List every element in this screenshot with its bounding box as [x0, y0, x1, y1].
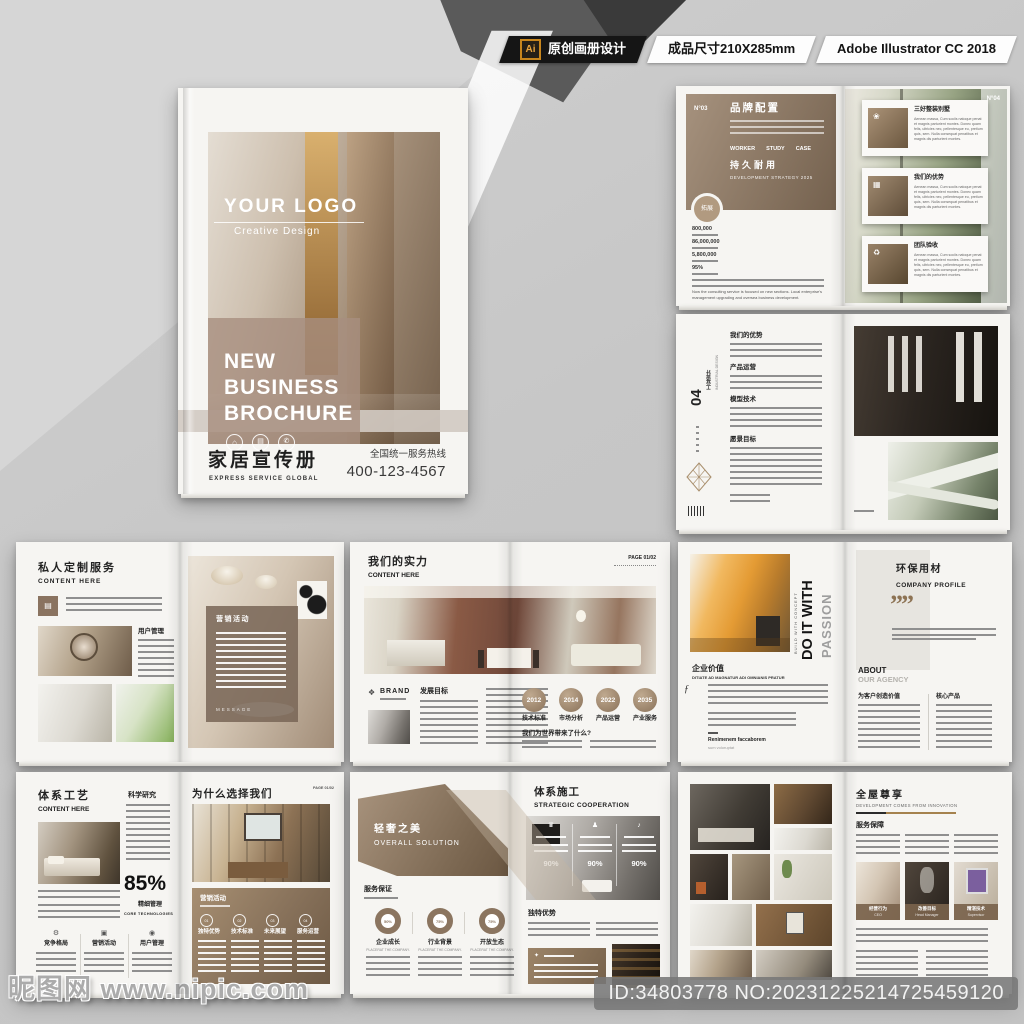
donut-sub-2: PLACERAT THE COMPANY. — [418, 949, 462, 953]
whole-photo-1: 经营行为 CEO — [856, 862, 900, 920]
recycle-icon: ♻ — [873, 248, 880, 257]
photo-accent — [786, 912, 804, 934]
overlay-pct-2: 90% — [576, 860, 614, 869]
text-lines — [578, 844, 612, 854]
strength-section: 发展目标 — [420, 688, 448, 696]
diamond-icon: ❖ — [368, 688, 375, 697]
dotted-rule — [614, 565, 656, 566]
donut-2: 75% — [427, 908, 453, 934]
cover-hotline-number: 400-123-4567 — [347, 463, 446, 480]
industrial-title-cn: 工业设计 — [707, 330, 713, 390]
caption-sub: Head Manager — [905, 913, 949, 917]
whole-collage — [690, 784, 832, 980]
luxury-right-subtitle: STRATEGIC COOPERATION — [534, 802, 629, 809]
donut-3: 75% — [479, 908, 505, 934]
header-design-segment: Ai 原创画册设计 — [499, 36, 647, 63]
text-lines — [856, 834, 900, 854]
caption-sub: Supervisor — [954, 913, 998, 917]
quote-icon: ”” — [890, 590, 912, 620]
craft-stat-sub: CORE TECHNOLOGIES — [124, 912, 173, 916]
photo-accent — [211, 566, 243, 585]
industrial-photo-arch — [888, 442, 998, 520]
whole-section: 服务保障 — [856, 822, 884, 830]
year-circle-4: 2035 — [633, 688, 657, 712]
strength-title: 我们的实力 — [368, 556, 428, 569]
brand-stat-2: 86,000,000 — [692, 239, 720, 245]
collage-photo — [690, 854, 728, 900]
strength-brand: BRAND — [380, 688, 410, 696]
photo-caption: 改善目标 Head Manager — [905, 904, 949, 920]
collage-photo — [732, 854, 770, 900]
custom-overlay: 营销活动 MESSAGE — [206, 606, 298, 722]
craft-panel-title: 营销活动 — [200, 895, 226, 902]
text-lines — [858, 704, 920, 752]
spread-brand: N°03 品牌配置 WORKER STUDY CASE 持久耐用 DEVELOP… — [676, 86, 1010, 306]
text-lines — [596, 922, 658, 940]
photo-accent — [228, 862, 288, 878]
collage-photo — [774, 784, 832, 824]
year-circle-2: 2014 — [559, 688, 583, 712]
spread-industrial: 工业设计 INDUSTRIAL DESIGN 04 我们的优势 产品运营 模型技… — [676, 314, 1010, 530]
text-lines — [624, 836, 654, 839]
brand-card-3: ♻ 团队验收 Aenean massa, Cum sociis natoque … — [862, 236, 988, 292]
text-lines — [590, 740, 656, 752]
text-lines — [297, 940, 325, 974]
text-lines — [418, 956, 462, 978]
brand-stat-3: 5,800,000 — [692, 252, 716, 258]
craft-page-no: PAGE 01/02 — [313, 786, 334, 790]
collage-photo — [690, 784, 770, 850]
cover-book: YOUR LOGO Creative Design NEW BUSINESS B… — [178, 88, 468, 494]
year-circle-1: 2012 — [522, 688, 546, 712]
grid-icon: ▤ — [38, 596, 58, 616]
craft-right-title: 为什么选择我们 — [192, 788, 273, 800]
industrial-section-3: 模型技术 — [730, 396, 756, 403]
card-body: Aenean massa, Cum sociis natoque penat e… — [914, 117, 984, 142]
text-lines — [730, 343, 822, 357]
text-lines — [730, 120, 824, 134]
passion-col1-title: 为客户创造价值 — [858, 694, 900, 701]
cover-title-line2: BUSINESS — [224, 376, 339, 400]
photo-accent — [576, 610, 586, 622]
text-lines — [926, 950, 988, 980]
text-lines — [692, 273, 718, 276]
photo-accent — [533, 650, 539, 668]
photo-accent — [698, 828, 754, 842]
photo-accent — [70, 633, 98, 661]
photo-accent — [782, 860, 792, 878]
craft-feature-2: 营销活动 — [84, 941, 124, 948]
flower-icon: ❀ — [873, 112, 880, 121]
text-lines — [856, 950, 918, 980]
frame-icon: ▦ — [873, 180, 881, 189]
passion-vertical-title2: PASSION — [820, 558, 835, 658]
photo-accent — [387, 640, 445, 666]
year-label-4: 产业服务 — [629, 716, 661, 723]
card-title: 我们的优势 — [914, 175, 944, 182]
phone-icon: ✆ — [278, 434, 295, 451]
overlay-divider — [616, 824, 617, 886]
text-lines — [66, 597, 162, 613]
barcode-icon — [688, 506, 704, 516]
home-icon: ⌂ — [226, 434, 243, 451]
card-body: Aenean massa, Cum sociis natoque penat e… — [914, 253, 984, 278]
caption-title: 精湛技术 — [954, 906, 998, 911]
passion-right-subtitle: COMPANY PROFILE — [896, 582, 966, 589]
luxury-right-title: 体系施工 — [534, 786, 580, 798]
text-lines — [138, 639, 174, 681]
brand-card-1: ❀ 三好整装别墅 Aenean massa, Cum sociis natoqu… — [862, 100, 988, 156]
passion-sign-sub: sum voloruptat — [708, 746, 734, 751]
step-circle-3: 03 — [266, 914, 279, 927]
brand-card-2: ▦ 我们的优势 Aenean massa, Cum sociis natoque… — [862, 168, 988, 224]
strength-panorama-photo — [364, 586, 656, 674]
page-number-right: N°04 — [987, 96, 1000, 103]
brand-note-en: Now the consulting service is focused on… — [692, 289, 830, 300]
photo-accent — [297, 581, 327, 619]
step-circle-4: 04 — [299, 914, 312, 927]
industrial-section-1: 我们的优势 — [730, 332, 763, 339]
whole-title: 全屋尊享 — [856, 790, 904, 802]
text-lines — [200, 905, 230, 908]
text-lines — [905, 834, 949, 854]
text-lines — [730, 375, 822, 389]
craft-feature-3: 用户管理 — [132, 941, 172, 948]
text-lines — [708, 684, 828, 706]
text-lines — [132, 952, 172, 972]
card-title: 团队验收 — [914, 243, 938, 250]
custom-overlay-footer: MESSAGE — [216, 707, 252, 712]
text-lines — [892, 638, 976, 642]
text-lines — [696, 426, 699, 454]
text-lines — [692, 260, 718, 263]
column-divider — [80, 934, 81, 978]
craft-stat-label: 精细管理 — [138, 902, 162, 909]
strength-page-no: PAGE 01/02 — [628, 556, 656, 562]
custom-photo-living — [38, 626, 132, 676]
photo-accent — [244, 813, 282, 841]
industrial-title-en: INDUSTRIAL DESIGN — [715, 330, 719, 390]
custom-photo-green — [116, 684, 174, 742]
photo-accent — [571, 644, 641, 666]
donut-1: 50% — [375, 908, 401, 934]
collage-photo — [690, 950, 752, 980]
overlay-pct-3: 90% — [620, 860, 658, 869]
luxury-subtitle: OVERALL SOLUTION — [374, 840, 460, 848]
page-number-left: N°03 — [694, 106, 707, 113]
signature-icon: ƒ — [684, 684, 689, 696]
header-software-segment: Adobe Illustrator CC 2018 — [816, 36, 1017, 63]
year-circle-3: 2022 — [596, 688, 620, 712]
cover-icons-row: ⌂ ▤ ✆ — [226, 434, 295, 451]
craft-photo-study — [192, 804, 330, 882]
text-lines — [380, 698, 406, 701]
text-lines — [216, 632, 286, 690]
brand-header-block: N°03 品牌配置 WORKER STUDY CASE 持久耐用 DEVELOP… — [686, 94, 836, 210]
image-id-badge: ID:34803778 NO:20231225214725459120 — [594, 977, 1018, 1010]
passion-sign-name: Renimenem faccaborem — [708, 738, 766, 744]
star-icon: ✦ — [534, 953, 539, 960]
column-divider — [928, 694, 929, 750]
passion-about: ABOUT — [858, 666, 886, 675]
photo-accent — [888, 336, 928, 392]
passion-vertical-title: DO IT WITH — [800, 554, 817, 660]
monitor-icon: ▣ — [84, 930, 124, 938]
photo-accent — [690, 638, 790, 652]
brand-stat-4: 95% — [692, 265, 703, 271]
text-lines — [854, 510, 874, 514]
brand-title: 品牌配置 — [730, 102, 780, 114]
luxury-title: 轻奢之美 — [374, 824, 422, 836]
spread-custom: 私人定制服务 CONTENT HERE ▤ 用户管理 营销活动 MESSAGE — [16, 542, 344, 762]
craft-feature-1: 竞争格局 — [36, 941, 76, 948]
cover-hotline-label: 全国统一服务热线 — [370, 450, 446, 461]
text-lines — [534, 964, 598, 978]
custom-photo-white — [38, 684, 112, 742]
column-divider — [412, 912, 413, 934]
step-label-2: 技术标准 — [231, 929, 253, 935]
site-watermark: 昵图网 www.nipic.com — [8, 974, 309, 1005]
step-circle-2: 02 — [233, 914, 246, 927]
year-label-2: 市场分析 — [555, 716, 587, 723]
text-lines — [126, 804, 170, 862]
short-rule — [708, 732, 718, 734]
collage-photo — [756, 904, 832, 946]
adobe-illustrator-icon: Ai — [520, 39, 541, 60]
brand-feature-title: 持久耐用 — [730, 160, 778, 170]
photo-accent — [487, 648, 531, 668]
custom-title: 私人定制服务 — [38, 562, 116, 575]
donut-label-3: 开放生态 — [470, 940, 514, 947]
text-lines — [692, 279, 824, 287]
luxury-section: 服务保证 — [364, 886, 392, 894]
text-lines — [856, 928, 988, 944]
industrial-number: 04 — [688, 372, 705, 406]
text-lines — [544, 955, 574, 958]
design-label: 原创画册设计 — [548, 42, 626, 57]
brand-stat-1: 800,000 — [692, 226, 712, 232]
collage-photo — [774, 854, 832, 900]
year-label-3: 产品运营 — [592, 716, 624, 723]
donut-label-1: 企业成长 — [366, 940, 410, 947]
accent-underline — [856, 812, 956, 814]
brand-nav: WORKER STUDY CASE — [730, 146, 811, 152]
text-lines — [366, 956, 410, 978]
brand-badge: 拓展 — [694, 196, 720, 222]
photo-accent — [696, 882, 706, 894]
donut-sub-1: PLACERAT THE COMPANY. — [366, 949, 410, 953]
cover-title-line1: NEW — [224, 350, 276, 374]
cover-title-line3: BROCHURE — [224, 402, 353, 426]
strength-small-photo — [368, 710, 410, 744]
cover-logo: YOUR LOGO — [224, 196, 358, 218]
photo-accent — [255, 575, 277, 589]
collage-photo — [756, 950, 832, 980]
custom-overlay-title: 营销活动 — [216, 616, 250, 624]
photo-accent — [364, 586, 656, 598]
custom-section: 用户管理 — [138, 628, 164, 635]
header-ribbon: Ai 原创画册设计 成品尺寸210X285mm Adobe Illustrato… — [504, 36, 1012, 63]
whole-subtitle: DEVELOPMENT COMES FROM INNOVATION — [856, 804, 957, 809]
passion-right-title: 环保用材 — [896, 564, 942, 576]
column-divider — [128, 934, 129, 978]
caption-title: 改善目标 — [905, 906, 949, 911]
text-lines — [364, 897, 398, 900]
craft-title: 体系工艺 — [38, 790, 90, 803]
photo-caption: 经营行为 CEO — [856, 904, 900, 920]
donut-label-2: 行业背景 — [418, 940, 462, 947]
gear-icon: ⚙ — [36, 930, 76, 938]
passion-kicker: BUILD WITH CONCEPT — [794, 558, 799, 654]
text-lines — [892, 628, 996, 636]
text-lines — [528, 922, 590, 940]
spread-passion: BUILD WITH CONCEPT DO IT WITH PASSION 企业… — [678, 542, 1012, 762]
card-title: 三好整装别墅 — [914, 107, 950, 114]
person-icon: ♟ — [576, 822, 614, 830]
nav-worker: WORKER — [730, 146, 755, 152]
passion-col2-title: 核心产品 — [936, 694, 960, 701]
brand-feature-subtitle: DEVELOPMENT STRATEGY 2025 — [730, 175, 813, 180]
custom-subtitle: CONTENT HERE — [38, 578, 101, 585]
card-body: Aenean massa, Cum sociis natoque penat e… — [914, 185, 984, 210]
whole-photo-3: 精湛技术 Supervisor — [954, 862, 998, 920]
text-lines — [38, 890, 120, 898]
step-label-3: 未来展望 — [264, 929, 286, 935]
text-lines — [522, 740, 582, 752]
headset-icon: ◉ — [132, 930, 172, 938]
caption-title: 经营行为 — [856, 906, 900, 911]
spread-whole: 全屋尊享 DEVELOPMENT COMES FROM INNOVATION 服… — [678, 772, 1012, 994]
text-lines — [38, 904, 120, 918]
software-label: Adobe Illustrator CC 2018 — [837, 42, 996, 57]
craft-subtitle: CONTENT HERE — [38, 806, 89, 813]
text-lines — [470, 956, 514, 978]
sofa-icon: ▤ — [252, 434, 269, 451]
text-lines — [692, 247, 718, 250]
spread-luxury: 轻奢之美 OVERALL SOLUTION 服务保证 50% 75% 75% 企… — [350, 772, 670, 994]
bell-icon: ♪ — [620, 822, 658, 830]
spread-craft: 体系工艺 CONTENT HERE 科学研究 85% 精细管理 CORE TEC… — [16, 772, 344, 994]
geometric-logo — [686, 462, 712, 492]
cover-logo-rule — [214, 222, 364, 223]
text-lines — [264, 940, 292, 974]
column-divider — [464, 912, 465, 934]
passion-section-subtitle: DITIATE AD MAGNATUR ADI OMNIANIS PRATUR — [692, 676, 785, 681]
strength-subtitle: CONTENT HERE — [368, 572, 419, 579]
text-lines — [622, 844, 656, 854]
text-lines — [730, 494, 770, 502]
industrial-photo-closet — [854, 326, 998, 436]
craft-panel: 营销活动 01 02 03 04 独特优势 技术标准 未来展望 服务运营 — [192, 888, 330, 984]
strength-question: 我们为世界带来了什么? — [522, 730, 591, 737]
photo-accent — [920, 867, 934, 893]
passion-section-title: 企业价值 — [692, 664, 724, 673]
industrial-section-4: 愿景目标 — [730, 436, 756, 443]
passion-photo-kitchen — [690, 554, 790, 652]
step-circle-1: 01 — [200, 914, 213, 927]
text-lines — [730, 447, 822, 487]
caption-sub: CEO — [856, 913, 900, 917]
text-lines — [708, 712, 796, 726]
craft-stat-value: 85% — [124, 872, 166, 896]
text-lines — [730, 407, 822, 427]
cover-cn-title: 家居宣传册 — [208, 450, 318, 472]
text-lines — [936, 704, 992, 752]
photo-accent — [956, 332, 990, 402]
text-lines — [420, 700, 478, 746]
craft-section-right: 科学研究 — [128, 792, 156, 800]
donut-sub-3: PLACERAT THE COMPANY. — [470, 949, 514, 953]
text-lines — [198, 940, 226, 974]
industrial-section-2: 产品运营 — [730, 364, 756, 371]
text-lines — [231, 940, 259, 974]
year-label-1: 技术标准 — [518, 716, 550, 723]
collage-photo — [690, 904, 752, 946]
luxury-section-right: 独特优势 — [528, 910, 556, 918]
text-lines — [580, 836, 610, 839]
cover-cn-subtitle: EXPRESS SERVICE GLOBAL — [209, 476, 319, 483]
photo-accent — [48, 856, 64, 864]
nav-case: CASE — [796, 146, 811, 152]
header-size-segment: 成品尺寸210X285mm — [647, 36, 816, 63]
cover-logo-subtitle: Creative Design — [234, 226, 320, 238]
step-label-4: 服务运营 — [297, 929, 319, 935]
step-label-1: 独特优势 — [198, 929, 220, 935]
passion-about-sub: OUR AGENCY — [858, 676, 909, 685]
text-lines — [36, 952, 76, 972]
collage-photo — [774, 828, 832, 850]
text-lines — [954, 834, 998, 854]
nav-study: STUDY — [766, 146, 785, 152]
photo-caption: 精湛技术 Supervisor — [954, 904, 998, 920]
text-lines — [692, 234, 718, 237]
whole-photo-2: 改善目标 Head Manager — [905, 862, 949, 920]
spread-strength: 我们的实力 CONTENT HERE PAGE 01/02 ❖ BRAND 发展… — [350, 542, 670, 762]
poster-canvas: Ai 原创画册设计 成品尺寸210X285mm Adobe Illustrato… — [0, 0, 1024, 1024]
craft-photo-bedroom — [38, 822, 120, 884]
text-lines — [84, 952, 124, 972]
photo-accent — [478, 650, 484, 668]
photo-accent — [966, 868, 988, 894]
size-label: 成品尺寸210X285mm — [668, 42, 795, 57]
